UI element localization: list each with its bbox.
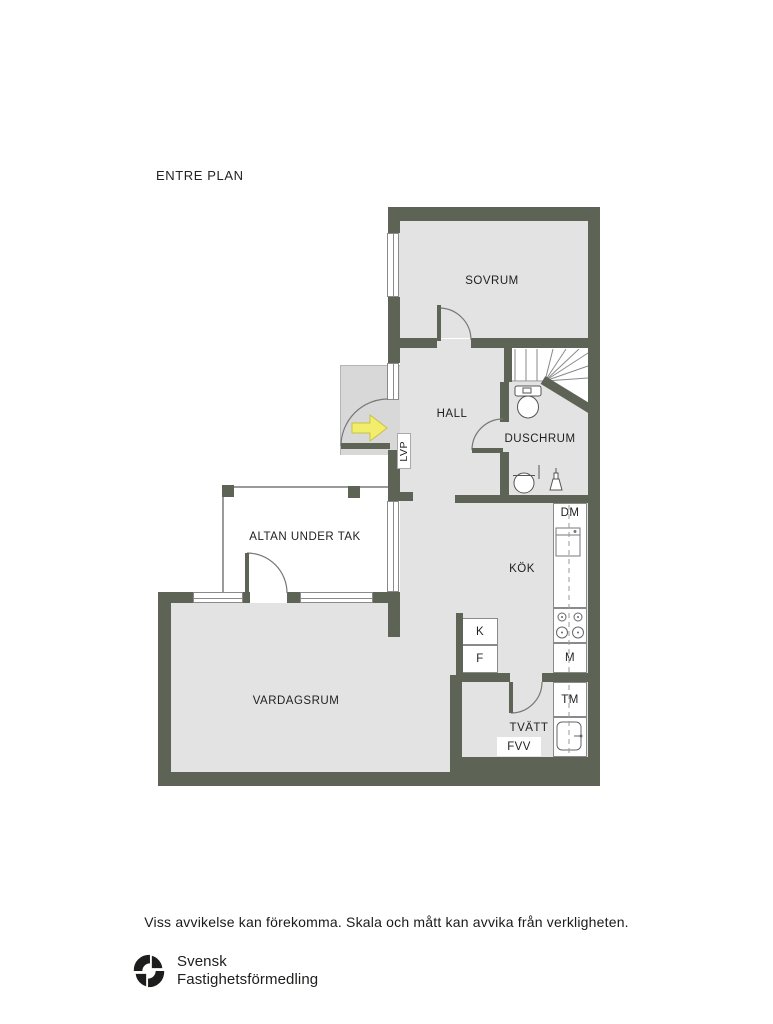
- floorplan-page: ENTRE PLAN DM M: [0, 0, 773, 1024]
- sink-icon: [508, 465, 548, 497]
- sf-monogram-icon: [130, 951, 168, 991]
- room-label-altan: ALTAN UNDER TAK: [249, 531, 360, 543]
- toilet-icon: [512, 384, 546, 422]
- door-leaf: [437, 305, 441, 341]
- duschrum-door-arc: [472, 419, 503, 450]
- door-leaf: [341, 443, 390, 449]
- door-leaf: [245, 553, 249, 593]
- sovrum-door-arc: [439, 308, 471, 340]
- heat-pump-label: LVP: [398, 441, 410, 462]
- room-label-tvatt: TVÄTT: [510, 722, 549, 734]
- door-arcs: [0, 0, 773, 1024]
- tvatt-door-arc: [511, 682, 542, 713]
- brand-logo: Svensk Fastighetsförmedling: [130, 951, 318, 991]
- room-label-vardagsrum: VARDAGSRUM: [253, 695, 340, 707]
- room-label-hall: HALL: [437, 408, 468, 420]
- altan-door-arc: [247, 553, 287, 593]
- shower-icon: [546, 468, 566, 494]
- room-label-kok: KÖK: [509, 563, 535, 575]
- room-label-sovrum: SOVRUM: [465, 275, 518, 287]
- brand-name-line2: Fastighetsförmedling: [177, 971, 318, 989]
- entrance-arrow-icon: [350, 413, 390, 443]
- door-leaf: [509, 682, 513, 713]
- brand-name-line1: Svensk: [177, 953, 318, 971]
- door-leaf: [472, 448, 503, 453]
- room-label-duschrum: DUSCHRUM: [504, 433, 575, 445]
- heat-pump-unit: LVP: [397, 433, 411, 469]
- disclaimer-text: Viss avvikelse kan förekomma. Skala och …: [0, 914, 773, 930]
